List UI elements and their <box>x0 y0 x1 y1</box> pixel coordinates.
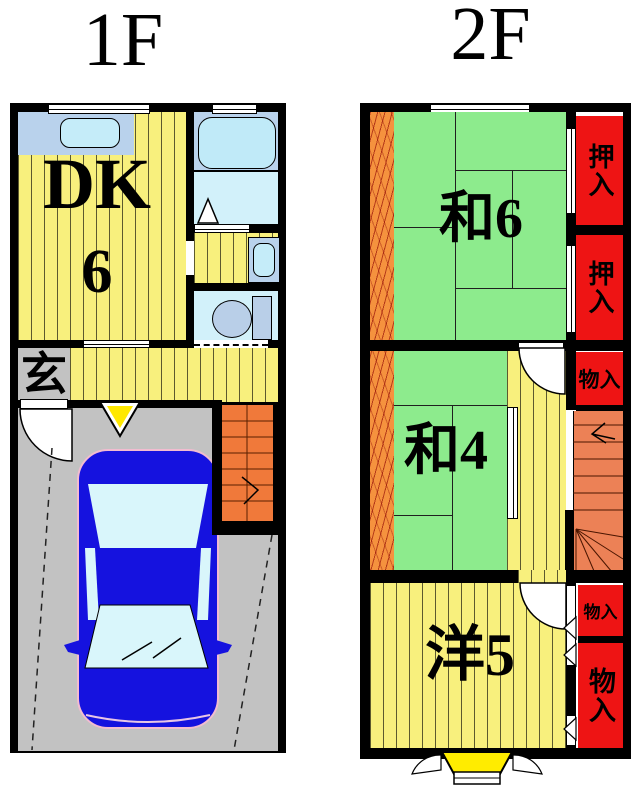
closet-oshiire-1: 押入 <box>576 116 623 225</box>
closet-oshiire-2: 押入 <box>576 235 623 340</box>
room-washitsu4-label: 和4 <box>382 423 510 479</box>
window <box>212 104 257 114</box>
room-dk-size: 6 <box>67 241 127 303</box>
window <box>48 104 150 114</box>
hall-floor <box>70 348 278 405</box>
youshitsu5-door-arc <box>520 583 566 629</box>
wall <box>278 103 286 753</box>
closet-label: 物入 <box>584 598 618 623</box>
sliding-door <box>83 340 150 348</box>
toilet-folding-door <box>194 340 268 348</box>
tatami-line <box>394 515 452 516</box>
floor2-title: 2F <box>418 0 563 72</box>
sliding-door <box>566 128 576 214</box>
sliding-door <box>507 407 518 519</box>
bathtub <box>198 117 276 169</box>
stairs-1f-steps <box>222 405 273 521</box>
toilet-tank <box>252 296 272 340</box>
folding-door-mark <box>564 644 576 666</box>
garage-opening-line <box>18 751 278 753</box>
wall <box>578 636 623 643</box>
wall <box>10 103 18 753</box>
wall <box>623 103 631 759</box>
wall <box>566 348 576 410</box>
wall <box>370 570 518 583</box>
sliding-door <box>194 224 250 233</box>
room-washitsu6-label: 和6 <box>395 191 567 247</box>
closet-monoire-1: 物入 <box>576 352 623 405</box>
hallway-door-arc <box>519 348 565 394</box>
room-youshitsu5-label: 洋5 <box>405 625 535 685</box>
wall <box>250 224 278 233</box>
tatami-line <box>455 112 456 170</box>
toilet-bowl <box>212 300 252 338</box>
sliding-door <box>566 245 576 333</box>
wall <box>565 510 573 578</box>
closet-label: 押入 <box>581 260 618 316</box>
floor1-plan: DK 6 玄 <box>10 103 286 759</box>
wall <box>576 225 623 235</box>
tatami-line <box>455 288 566 289</box>
stairs-up-arrow <box>592 423 615 443</box>
wall <box>186 112 194 241</box>
bay-window <box>408 752 548 792</box>
wall <box>268 340 278 348</box>
floor1-title: 1F <box>38 2 208 78</box>
folding-door-mark <box>564 617 576 639</box>
bath-door-mark <box>198 199 218 223</box>
room-genkan-label: 玄 <box>20 352 68 398</box>
tatami-line <box>455 170 566 171</box>
wall <box>18 340 83 348</box>
folding-door-mark <box>564 718 576 740</box>
wall <box>186 283 286 291</box>
closet-label: 押入 <box>581 143 618 199</box>
wall <box>566 570 623 583</box>
hallway-floor <box>518 570 566 583</box>
closet-label: 物入 <box>581 667 620 725</box>
room-dk-label: DK <box>22 148 172 220</box>
closet-monoire-3: 物入 <box>578 643 623 748</box>
closet-label: 物入 <box>579 364 621 394</box>
washbasin <box>253 243 275 277</box>
wall <box>150 340 194 348</box>
floor2-plan: 和6 押入 押入 和4 物入 <box>360 103 631 759</box>
wall <box>370 340 623 351</box>
tatami-line <box>394 405 507 406</box>
wall <box>360 103 370 759</box>
stairs-2f-steps <box>573 411 623 578</box>
stairs-down-arrow <box>242 477 258 504</box>
closet-monoire-2: 物入 <box>578 585 623 636</box>
floorplan-canvas: 1F 2F DK 6 <box>0 0 638 800</box>
